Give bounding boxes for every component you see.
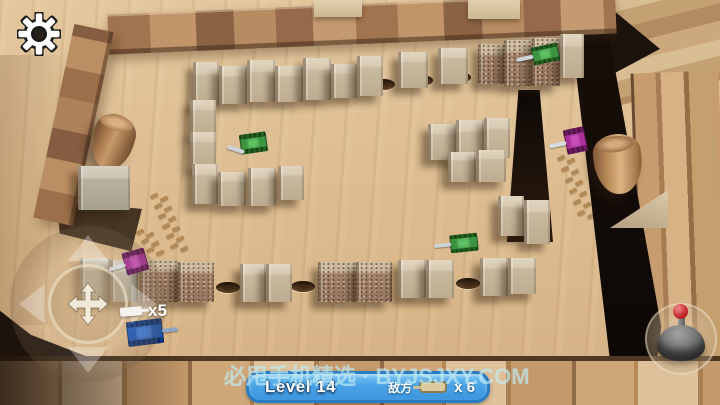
wall-block-tan	[524, 200, 550, 244]
track-mark	[160, 195, 169, 202]
outer-wood-block	[314, 0, 362, 17]
settings-button[interactable]	[17, 12, 61, 56]
track-mark	[561, 165, 570, 172]
wall-block-tan	[398, 52, 428, 88]
lives-count-label: x5	[148, 301, 167, 321]
player-tank-icon	[120, 306, 143, 317]
wall-block-tan	[438, 48, 468, 84]
gear-icon	[17, 12, 61, 56]
wall-block-tan	[480, 258, 508, 296]
wall-block-tan	[278, 166, 304, 200]
track-mark	[166, 232, 175, 239]
tank-barrel	[162, 326, 178, 332]
enemy-tank-purple-right	[563, 127, 588, 154]
track-mark	[150, 192, 159, 199]
wall-block-tan	[448, 152, 476, 182]
wall-block-brick	[478, 44, 504, 84]
enemy-tank-green-left	[239, 132, 268, 154]
wall-block-tan	[192, 164, 218, 204]
wall-block-brick	[504, 40, 532, 86]
wall-block-brick	[356, 262, 392, 302]
dpad-down-arrow-icon[interactable]	[68, 347, 108, 373]
track-mark	[557, 154, 566, 161]
wall-block-tan	[331, 64, 357, 98]
game-screen: x5 Level 14 敌方 x 6 必甩手机精选 · BYJSJXY.COM	[0, 0, 720, 405]
floor-hole	[291, 281, 315, 292]
wall-block-tan	[476, 150, 506, 182]
track-mark	[164, 205, 173, 212]
track-mark	[162, 222, 171, 229]
track-mark	[567, 157, 576, 164]
dpad-left-arrow-icon[interactable]	[19, 284, 45, 324]
track-mark	[170, 242, 179, 249]
track-mark	[168, 215, 177, 222]
tank-barrel	[549, 141, 566, 148]
lives-indicator: x5	[120, 301, 167, 321]
wall-block-tan	[357, 56, 383, 96]
floor-hole	[216, 282, 240, 293]
track-mark	[583, 201, 592, 208]
wall-block-tan	[190, 100, 216, 136]
wall-block-tan	[219, 66, 247, 104]
tank-barrel	[434, 242, 451, 248]
move-cross-icon	[65, 281, 111, 327]
track-mark	[575, 179, 584, 186]
wall-block-tan	[266, 264, 292, 302]
wall-block-brick	[318, 262, 356, 302]
track-mark	[141, 237, 150, 244]
wall-block-brick	[178, 262, 214, 302]
wall-block-tan	[426, 260, 454, 298]
track-mark	[158, 212, 167, 219]
wall-block-tan	[303, 58, 331, 100]
wall-block-tan	[498, 196, 524, 236]
outer-wood-block	[468, 0, 520, 19]
joystick-dome-icon	[657, 325, 705, 361]
track-mark	[172, 225, 181, 232]
wall-block-tan	[560, 34, 584, 78]
track-mark	[579, 190, 588, 197]
dpad-center[interactable]	[48, 264, 128, 344]
tank-turret	[457, 238, 470, 249]
wall-block-tan	[275, 66, 303, 102]
dpad-up-arrow-icon[interactable]	[68, 235, 108, 261]
wall-block-tan	[248, 168, 276, 206]
watermark: 必甩手机精选 · BYJSJXY.COM	[224, 359, 530, 391]
fire-joystick[interactable]	[645, 303, 717, 375]
wall-block-tan	[218, 172, 246, 206]
track-mark	[180, 245, 189, 252]
wall-block-gray	[78, 166, 130, 210]
wall-block-tan	[240, 264, 266, 302]
track-mark	[565, 176, 574, 183]
joystick-ball-icon	[673, 304, 688, 319]
tank-turret	[246, 137, 259, 149]
floor-hole	[456, 278, 480, 289]
track-mark	[156, 249, 165, 256]
track-mark	[176, 235, 185, 242]
enemy-tank-green-center	[449, 234, 479, 253]
wall-block-tan	[508, 258, 536, 294]
track-mark	[577, 209, 586, 216]
track-mark	[571, 168, 580, 175]
wall-block-tan	[247, 60, 275, 102]
track-mark	[154, 202, 163, 209]
track-mark	[569, 187, 578, 194]
track-mark	[573, 198, 582, 205]
wall-block-tan	[398, 260, 426, 298]
wall-block-tan	[190, 132, 216, 168]
